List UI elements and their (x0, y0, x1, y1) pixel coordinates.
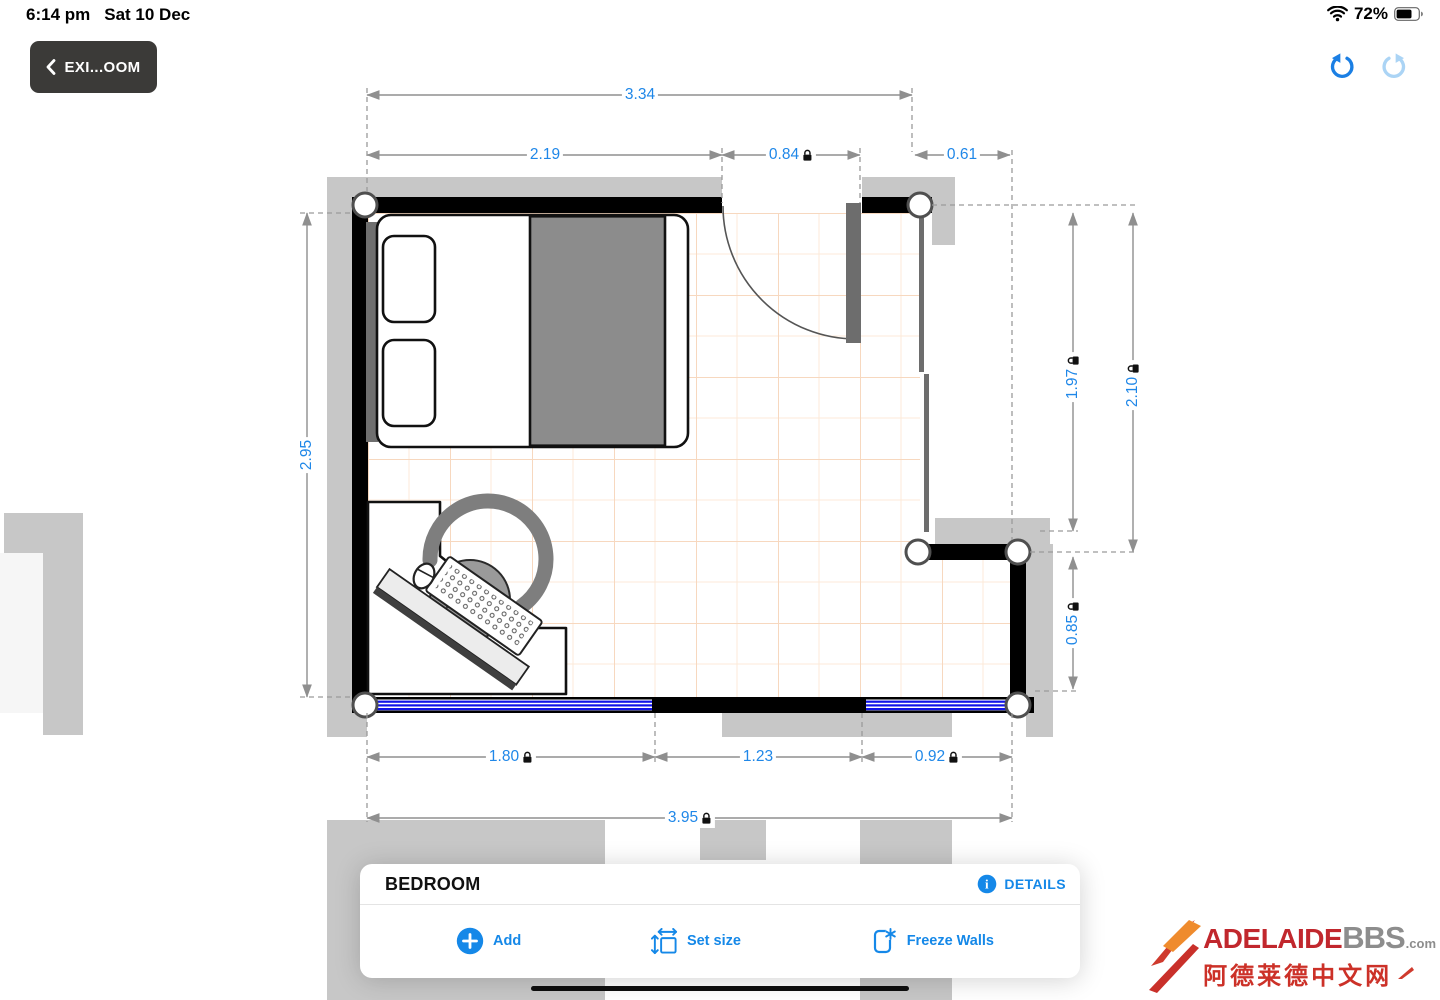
add-button[interactable]: Add (456, 927, 521, 955)
date: Sat 10 Dec (104, 5, 190, 25)
status-bar: 6:14 pm Sat 10 Dec 72% (0, 0, 1440, 26)
room-name: BEDROOM (385, 874, 480, 895)
watermark-brand-secondary: BBS (1342, 920, 1404, 956)
wall-node (906, 540, 930, 564)
pillow (383, 236, 435, 322)
lock-icon (948, 751, 959, 764)
wifi-icon (1327, 6, 1348, 22)
undo-button[interactable] (1327, 53, 1355, 81)
window-left[interactable] (372, 697, 652, 713)
dim-top-right[interactable]: 0.61 (944, 145, 980, 165)
set-size-label: Set size (687, 933, 741, 949)
room-panel: BEDROOM i DETAILS Add (360, 864, 1080, 978)
lock-icon (1127, 363, 1140, 374)
back-button-label: EXI...OOM (64, 59, 140, 76)
watermark-brand-suffix: .com (1406, 936, 1436, 951)
lock-icon (802, 149, 813, 162)
dim-bottom-middle[interactable]: 1.23 (740, 747, 776, 767)
door-leaf (846, 203, 861, 343)
battery-percent: 72% (1354, 4, 1388, 24)
floor-plan-canvas[interactable] (0, 0, 1440, 1000)
wall-node (353, 193, 377, 217)
add-label: Add (493, 933, 521, 949)
dim-top-door[interactable]: 0.84 (766, 145, 816, 165)
bed[interactable] (366, 215, 688, 447)
wall-node (353, 693, 377, 717)
watermark: ADELAIDEBBS.com 阿德莱德中文网 (1149, 916, 1436, 994)
svg-text:i: i (985, 877, 989, 892)
freeze-walls-label: Freeze Walls (907, 933, 994, 949)
dim-left-side[interactable]: 2.95 (297, 437, 317, 473)
redo-button[interactable] (1381, 53, 1409, 81)
wall-node (1006, 693, 1030, 717)
dim-bottom-total[interactable]: 3.95 (665, 808, 715, 828)
home-indicator[interactable] (531, 986, 909, 991)
set-size-button[interactable]: Set size (651, 928, 741, 955)
dim-bottom-right[interactable]: 0.92 (912, 747, 962, 767)
lock-icon (1067, 601, 1080, 612)
wall-node (1006, 540, 1030, 564)
freeze-walls-button[interactable]: Freeze Walls (871, 927, 994, 955)
lock-icon (522, 751, 533, 764)
details-button[interactable]: i DETAILS (977, 874, 1066, 894)
dim-bottom-left[interactable]: 1.80 (486, 747, 536, 767)
clock: 6:14 pm (26, 5, 90, 25)
watermark-tagline: 阿德莱德中文网 (1203, 956, 1392, 991)
blanket (530, 216, 665, 445)
lock-icon (1067, 355, 1080, 366)
watermark-arrow (1398, 967, 1414, 979)
dim-right-outer[interactable]: 2.10 (1123, 360, 1143, 410)
estimated-wall-right[interactable] (919, 218, 929, 532)
redo-arrow-icon (1381, 53, 1409, 81)
freeze-wall-icon (871, 927, 898, 955)
lock-icon (701, 812, 712, 825)
details-label: DETAILS (1004, 876, 1066, 892)
resize-icon (651, 928, 678, 955)
dim-right-lower[interactable]: 0.85 (1063, 598, 1083, 648)
dim-right-inner[interactable]: 1.97 (1063, 352, 1083, 402)
info-icon: i (977, 874, 997, 894)
back-button[interactable]: EXI...OOM (30, 41, 157, 93)
dim-top-left[interactable]: 2.19 (527, 145, 563, 165)
battery-icon (1394, 7, 1424, 21)
wall-node (908, 193, 932, 217)
window-right[interactable] (866, 697, 1008, 713)
undo-arrow-icon (1327, 53, 1355, 81)
watermark-brand-primary: ADELAIDE (1203, 923, 1342, 955)
chevron-left-icon (46, 59, 56, 75)
adjacent-room-wall (0, 513, 83, 735)
plus-circle-icon (456, 927, 484, 955)
pillow (383, 340, 435, 426)
watermark-logo-swoosh (1149, 916, 1201, 994)
dim-top-total[interactable]: 3.34 (622, 85, 658, 105)
app-screen: 3.34 2.19 0.84 0.61 2.95 1.97 2.10 0.85 … (0, 0, 1440, 1000)
